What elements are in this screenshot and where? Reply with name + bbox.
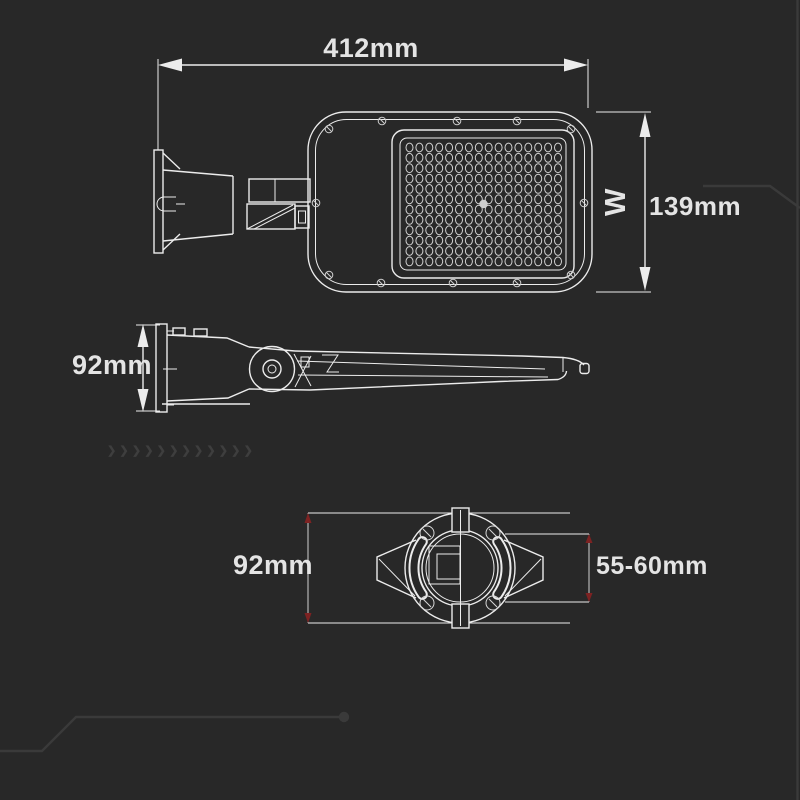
mounting-bracket-side	[156, 324, 250, 412]
top-view-drawing	[154, 59, 651, 293]
clamp-slot-right	[498, 542, 506, 595]
dim-line-412	[158, 59, 588, 151]
dim-label-pole-diameter: 55-60mm	[596, 552, 708, 581]
lamp-body-side	[249, 347, 589, 390]
dim-label-height: 139mm	[649, 191, 741, 222]
bottom-clamp-view-drawing	[305, 508, 593, 628]
circuit-trace-node	[339, 712, 349, 722]
panel-center-screw	[479, 200, 487, 208]
side-view-drawing	[136, 324, 589, 412]
lamp-head-inner-outline	[316, 120, 585, 285]
mounting-arm-top-view	[154, 150, 310, 253]
circuit-trace-bottom-left	[0, 717, 341, 751]
dim-label-width: 412mm	[296, 33, 446, 64]
dim-label-side-height: 92mm	[72, 350, 152, 381]
pole-key-profile	[429, 546, 460, 584]
pivot-hinge	[250, 347, 312, 392]
lamp-head-outline	[308, 112, 592, 292]
dim-label-clamp-diameter: 92mm	[233, 550, 313, 581]
head-screws	[312, 117, 588, 287]
technical-drawing-canvas: 412mm 139mm W 92mm 92mm 55-60mm ❯❯❯❯❯❯❯❯…	[0, 0, 800, 800]
chevron-row-decor: ❯❯❯❯❯❯❯❯❯❯❯❯	[107, 444, 256, 457]
dim-label-w-axis: W	[600, 183, 636, 221]
clamp-slot-left	[414, 542, 422, 595]
drawing-layer	[0, 0, 800, 800]
